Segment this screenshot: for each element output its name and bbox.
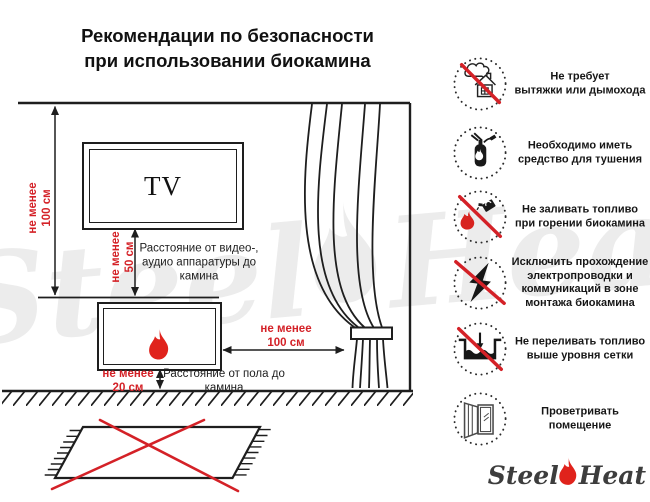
tv-screen: TV [89, 149, 237, 223]
tv-label: TV [144, 171, 182, 202]
biofireplace-inner [103, 308, 216, 365]
tv-box: TV [82, 142, 244, 230]
rule-no-refuel-while-burning: Не заливать топливо при горении биокамин… [452, 189, 648, 245]
rule-text: Не заливать топливо при горении биокамин… [510, 203, 650, 230]
ventilate-icon [452, 391, 508, 447]
logo-heat: Heat [579, 461, 646, 490]
curtain-gap-label: не менее 100 см [260, 322, 311, 350]
rule-no-wiring: Исключить прохождение электропроводки и … [452, 255, 648, 311]
rule-ventilate: Проветривать помещение [452, 391, 648, 447]
rule-text: Не переливать топливо выше уровня сетки [510, 335, 650, 362]
brand-logo: Steel Heat [488, 452, 646, 498]
rule-text: Проветривать помещение [510, 405, 650, 432]
no-refuel-while-burning-icon [452, 189, 508, 245]
rule-no-chimney: Не требует вытяжки или дымохода [452, 56, 648, 112]
logo-steel: Steel [488, 461, 559, 490]
rule-extinguisher: Необходимо иметь средство для тушения [452, 125, 648, 181]
no-wiring-icon [452, 255, 508, 311]
floor-gap-caption: Расстояние от пола до камина [144, 368, 304, 396]
no-overfill-icon [452, 321, 508, 377]
rule-text: Исключить прохождение электропроводки и … [510, 256, 650, 311]
infographic-page: Steel Heat Рекомендации по безопасности … [0, 0, 650, 502]
curtain-tie [351, 328, 392, 340]
curtain [305, 104, 392, 388]
tv-gap-caption: Расстояние от видео-, аудио аппаратуры д… [119, 242, 279, 283]
rule-no-overfill: Не переливать топливо выше уровня сетки [452, 321, 648, 377]
rug [45, 420, 271, 491]
flame-icon [145, 327, 174, 362]
no-chimney-icon [452, 56, 508, 112]
rule-text: Необходимо иметь средство для тушения [510, 139, 650, 166]
extinguisher-icon [452, 125, 508, 181]
wall-height-label: не менее 100 см [26, 182, 54, 233]
rule-text: Не требует вытяжки или дымохода [510, 70, 650, 97]
biofireplace-box [97, 302, 222, 371]
